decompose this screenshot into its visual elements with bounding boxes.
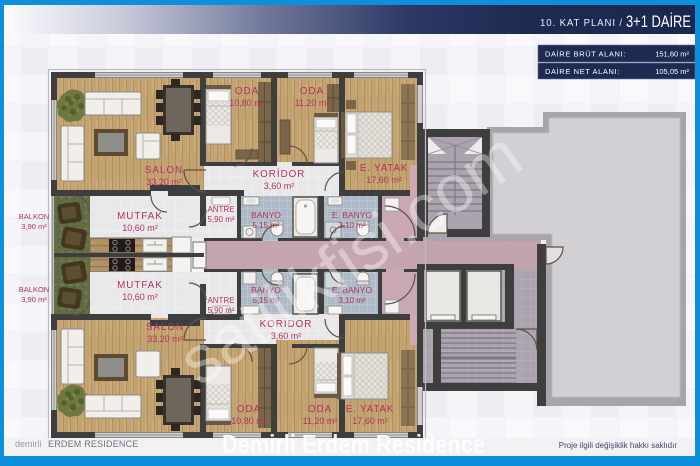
svg-text:DAİRE NET ALANI:: DAİRE NET ALANI:	[545, 67, 620, 76]
svg-text:ODA: ODA	[308, 404, 332, 415]
svg-text:10. KAT PLANI /: 10. KAT PLANI /	[540, 18, 623, 29]
svg-text:11,20 m²: 11,20 m²	[303, 416, 338, 426]
svg-text:105,05 m²: 105,05 m²	[655, 67, 689, 76]
svg-text:3+1 DAİRE: 3+1 DAİRE	[626, 12, 691, 31]
svg-text:Demirli Erdem Residence: Demirli Erdem Residence	[222, 429, 485, 459]
svg-text:10,80 m²: 10,80 m²	[231, 416, 267, 426]
svg-text:5,15 m²: 5,15 m²	[252, 221, 279, 230]
svg-text:BALKON: BALKON	[19, 212, 49, 221]
svg-text:SALON: SALON	[145, 165, 183, 176]
svg-text:3,60 m²: 3,60 m²	[264, 181, 295, 191]
svg-text:17,60 m²: 17,60 m²	[352, 416, 388, 426]
svg-text:MUTFAK: MUTFAK	[117, 280, 163, 291]
svg-text:3,90 m²: 3,90 m²	[21, 222, 47, 231]
svg-text:ODA: ODA	[237, 404, 261, 415]
svg-text:ANTRE: ANTRE	[207, 205, 234, 214]
svg-text:BANYO: BANYO	[251, 210, 281, 220]
svg-text:MUTFAK: MUTFAK	[117, 211, 163, 222]
svg-text:Proje ilgili değişiklik hakkı: Proje ilgili değişiklik hakkı saklıdır	[559, 441, 678, 450]
svg-text:3,90 m²: 3,90 m²	[21, 295, 47, 304]
svg-text:E. YATAK: E. YATAK	[346, 404, 394, 415]
svg-text:33,20 m²: 33,20 m²	[146, 177, 182, 187]
svg-text:ODA: ODA	[235, 86, 259, 97]
svg-text:10,60 m²: 10,60 m²	[122, 223, 158, 233]
svg-text:DAİRE BRÜT ALANI:: DAİRE BRÜT ALANI:	[545, 50, 626, 59]
svg-text:11,20 m²: 11,20 m²	[295, 98, 330, 108]
svg-text:5,90 m²: 5,90 m²	[207, 215, 234, 224]
svg-text:10,80 m²: 10,80 m²	[229, 98, 265, 108]
svg-text:BALKON: BALKON	[19, 285, 49, 294]
svg-text:E. YATAK: E. YATAK	[360, 163, 408, 174]
svg-text:ERDEM RESIDENCE: ERDEM RESIDENCE	[48, 439, 139, 449]
svg-text:151,60 m²: 151,60 m²	[655, 50, 689, 59]
svg-text:demirli: demirli	[15, 439, 42, 449]
svg-text:KORİDOR: KORİDOR	[253, 169, 306, 180]
svg-text:ODA: ODA	[300, 86, 324, 97]
svg-text:10,60 m²: 10,60 m²	[122, 292, 158, 302]
